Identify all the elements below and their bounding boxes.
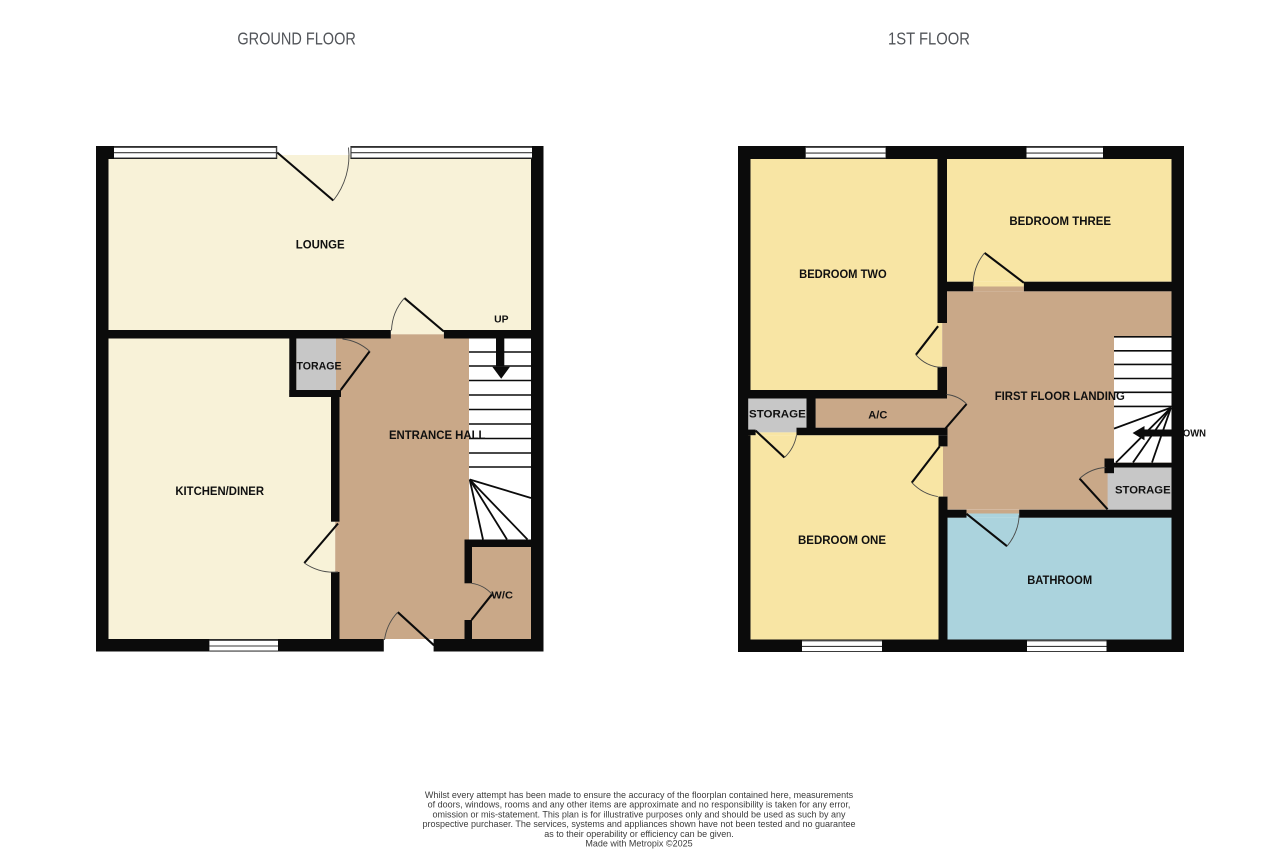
svg-text:STORAGE: STORAGE [1115, 485, 1171, 497]
svg-text:TORAGE: TORAGE [297, 361, 342, 373]
svg-text:STORAGE: STORAGE [749, 409, 806, 421]
svg-text:1ST FLOOR: 1ST FLOOR [888, 29, 970, 49]
svg-text:BEDROOM TWO: BEDROOM TWO [799, 267, 887, 281]
svg-text:prospective purchaser. The ser: prospective purchaser. The services, sys… [422, 819, 855, 829]
svg-text:UP: UP [494, 315, 509, 326]
svg-text:LOUNGE: LOUNGE [296, 238, 345, 252]
svg-text:ENTRANCE HALL: ENTRANCE HALL [389, 428, 486, 442]
svg-text:of doors, windows, rooms and a: of doors, windows, rooms and any other i… [428, 800, 851, 810]
svg-text:KITCHEN/DINER: KITCHEN/DINER [175, 484, 264, 498]
svg-text:BATHROOM: BATHROOM [1027, 573, 1092, 587]
svg-text:GROUND FLOOR: GROUND FLOOR [237, 29, 356, 49]
svg-text:Made with Metropix ©2025: Made with Metropix ©2025 [585, 839, 692, 849]
svg-text:as to their operability or eff: as to their operability or efficiency ca… [544, 829, 733, 839]
svg-text:omission or mis-statement. Thi: omission or mis-statement. This plan is … [432, 809, 846, 819]
svg-text:W/C: W/C [491, 591, 513, 602]
svg-text:A/C: A/C [868, 410, 887, 422]
svg-text:Whilst every attempt has been: Whilst every attempt has been made to en… [425, 790, 854, 800]
svg-text:FIRST FLOOR LANDING: FIRST FLOOR LANDING [995, 389, 1125, 403]
svg-text:BEDROOM THREE: BEDROOM THREE [1009, 214, 1111, 228]
svg-text:BEDROOM ONE: BEDROOM ONE [798, 533, 886, 547]
